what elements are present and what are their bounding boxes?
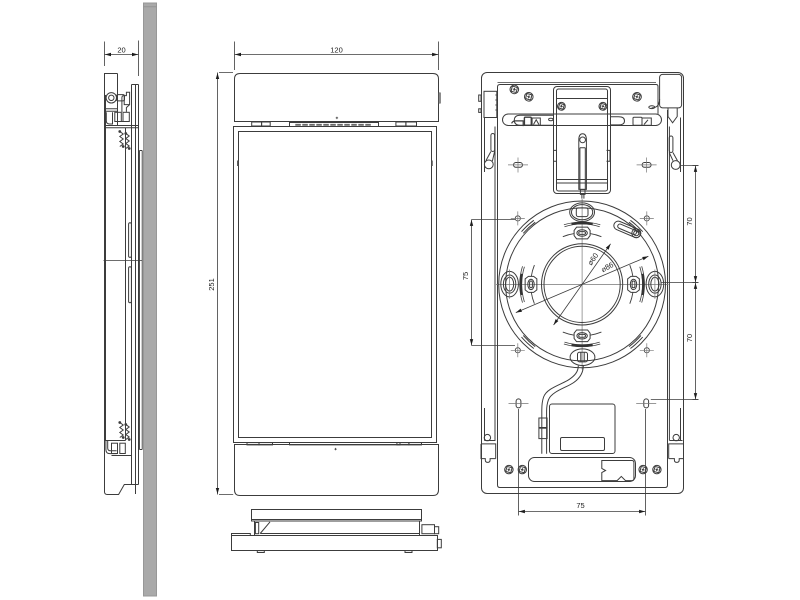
svg-text:75: 75 [576, 501, 584, 510]
svg-text:70: 70 [685, 334, 694, 342]
svg-text:251: 251 [207, 278, 216, 291]
svg-text:120: 120 [330, 45, 343, 54]
svg-text:75: 75 [461, 272, 470, 280]
svg-text:20: 20 [117, 45, 125, 54]
svg-text:⌀60: ⌀60 [586, 251, 601, 267]
svg-text:70: 70 [685, 217, 694, 225]
